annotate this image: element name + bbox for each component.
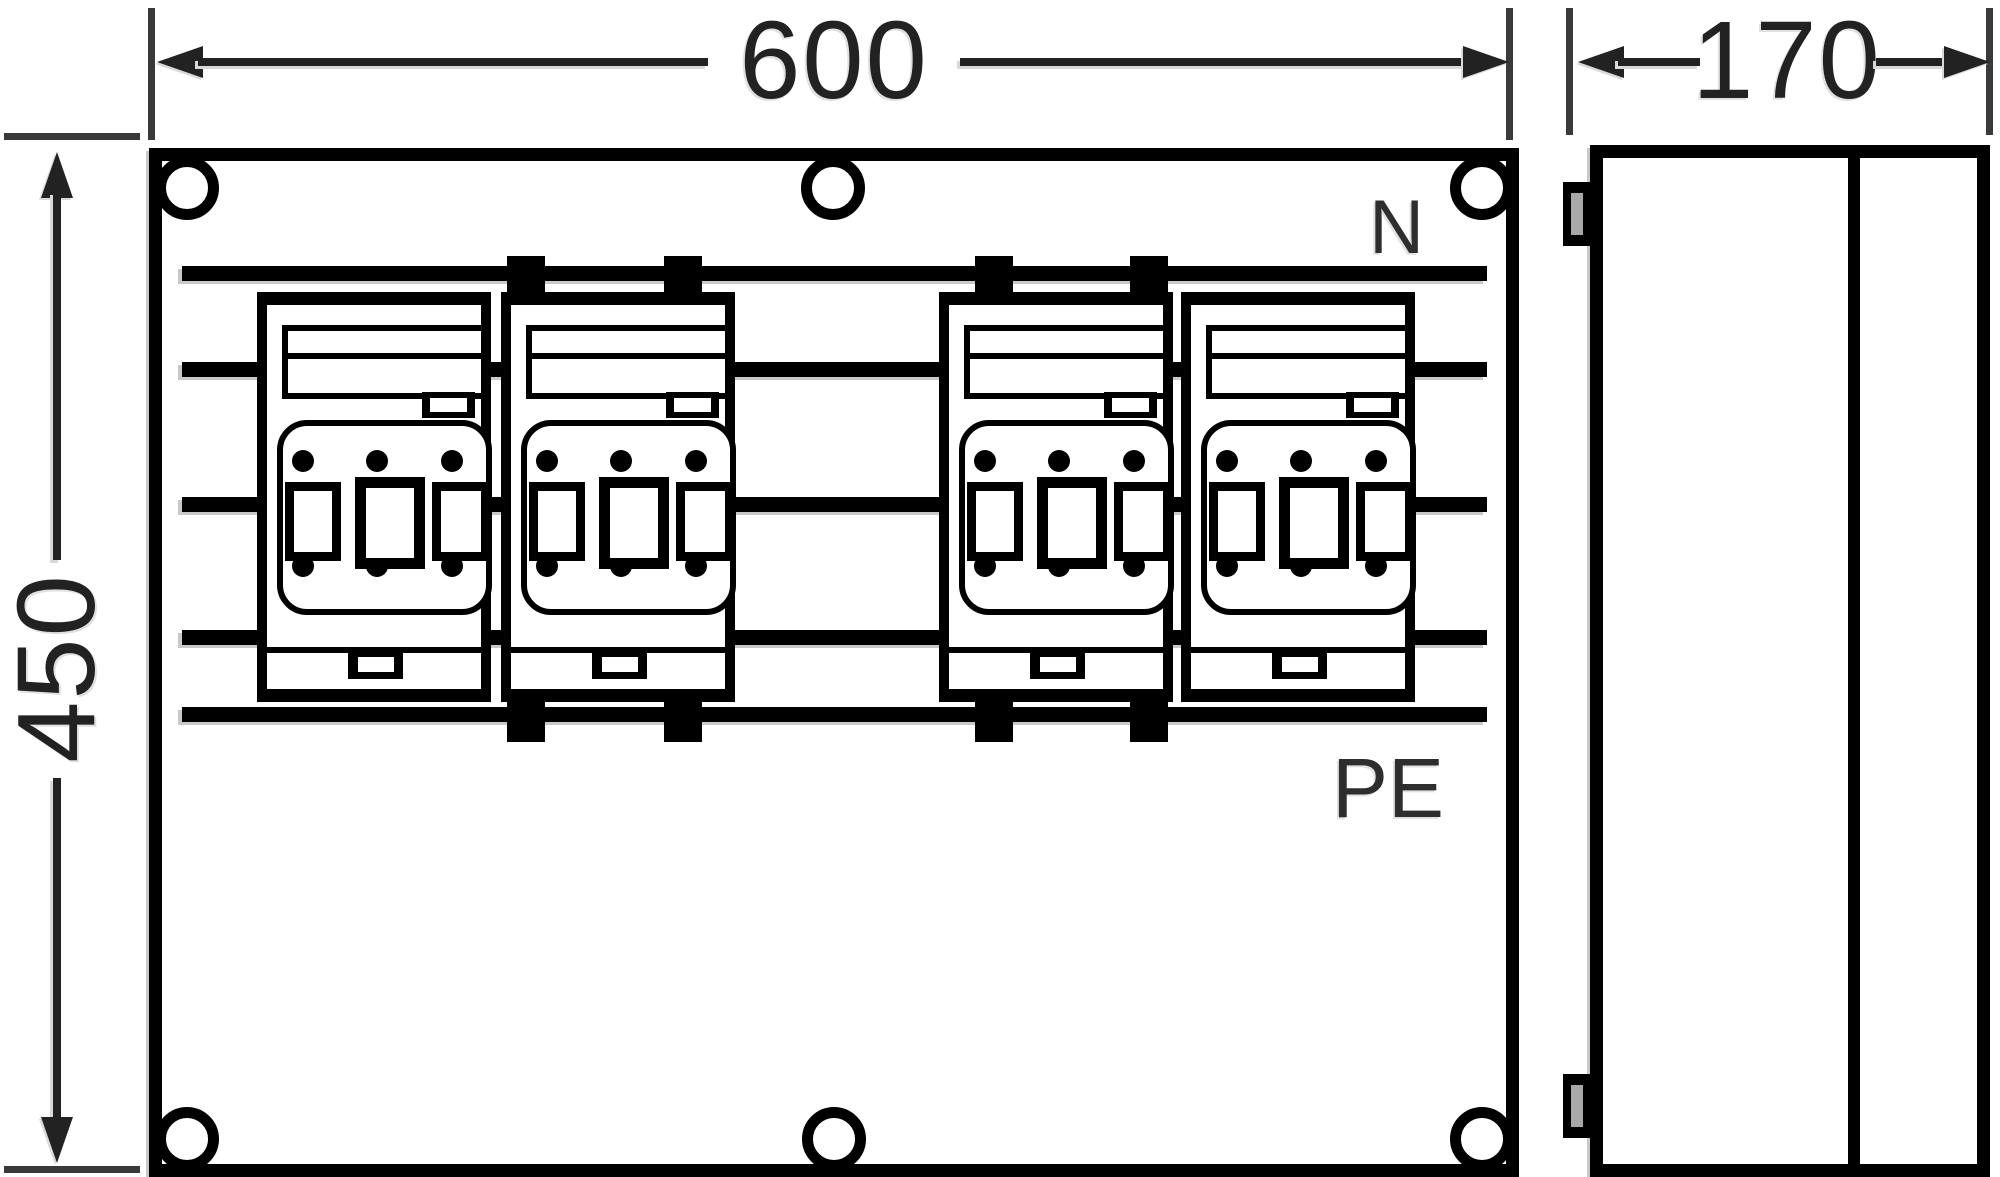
fuse-switch-unit-3	[939, 292, 1173, 702]
rail-clip-slot	[358, 657, 394, 672]
mounting-hole-bottom-center	[802, 1107, 866, 1171]
rail-clip-slot	[602, 657, 638, 672]
latch-window-slot	[1354, 398, 1391, 412]
screw-dot	[441, 450, 463, 472]
fuse-switch-unit-1	[257, 292, 491, 702]
depth-dimension-label: 170	[1692, 6, 1882, 116]
busbar-pe	[182, 707, 1487, 722]
unit-left-wall	[501, 292, 511, 702]
depth-dimension-line-right	[1876, 58, 1950, 66]
fuse-blade-window-right	[1114, 482, 1172, 561]
arrow-left-icon	[157, 46, 203, 78]
enclosure-dimension-drawing: 600 170 450 N PE	[0, 0, 2000, 1177]
fuse-blade-window-middle	[1279, 477, 1349, 569]
mounting-hole-top-right	[1450, 156, 1514, 220]
fuse-blade-window-middle	[599, 477, 669, 569]
unit-top-edge	[939, 292, 1173, 305]
wall-mount-clip-slot	[1571, 1085, 1583, 1127]
height-dimension-line-bottom	[53, 778, 61, 1120]
neutral-busbar-label: N	[1340, 190, 1424, 256]
unit-latch-window	[1346, 392, 1399, 418]
depth-dimension-line-left	[1618, 58, 1700, 66]
label-block-divider	[970, 353, 1163, 359]
busbar-clamp-tab	[664, 256, 702, 293]
busbar-clamp-tab	[975, 701, 1013, 742]
busbar-clamp-tab	[1130, 701, 1168, 742]
unit-top-edge	[1181, 292, 1415, 305]
mounting-hole-bottom-left	[155, 1107, 219, 1171]
cover-joint-line	[1848, 158, 1860, 1170]
fuse-switch-unit-2	[501, 292, 735, 702]
width-dimension-line-right	[960, 58, 1465, 66]
busbar-neutral	[182, 266, 1487, 281]
busbar-clamp-tab	[507, 256, 545, 293]
fuse-blade-window-middle	[1037, 477, 1107, 569]
screw-dot	[1365, 450, 1387, 472]
fuse-blade-window-right	[432, 482, 490, 561]
screw-dot	[366, 450, 388, 472]
unit-latch-window	[1104, 392, 1157, 418]
screw-dot	[1290, 450, 1312, 472]
fuse-blade-window-right	[676, 482, 734, 561]
busbar-clamp-tab	[1130, 256, 1168, 293]
extension-line-width-left	[148, 8, 155, 140]
width-dimension-line-left	[198, 58, 708, 66]
screw-dot	[685, 450, 707, 472]
unit-latch-window	[422, 392, 475, 418]
busbar-clamp-tab	[664, 701, 702, 742]
rail-clip-slot	[1282, 657, 1318, 672]
busbar-clamp-tab	[507, 701, 545, 742]
fuse-switch-unit-4	[1181, 292, 1415, 702]
arrow-right-icon	[1463, 46, 1509, 78]
screw-dot	[536, 450, 558, 472]
screw-dot	[974, 450, 996, 472]
unit-label-block	[282, 325, 487, 399]
fuse-blade-window-left	[967, 482, 1023, 561]
rail-clip-slot	[1040, 657, 1076, 672]
screw-dot	[1048, 450, 1070, 472]
rail-clip-notch	[1030, 650, 1085, 679]
screw-dot	[1123, 450, 1145, 472]
label-block-divider	[1212, 353, 1405, 359]
pe-busbar-label: PE	[1318, 746, 1458, 818]
unit-left-wall	[257, 292, 267, 702]
wall-mount-clip-top	[1563, 182, 1591, 246]
arrow-down-icon	[41, 1117, 73, 1163]
unit-bottom-edge	[257, 689, 491, 702]
rail-clip-notch	[348, 650, 403, 679]
extension-line-height-top	[4, 133, 140, 140]
fuse-blade-window-left	[529, 482, 585, 561]
rail-clip-notch	[1272, 650, 1327, 679]
unit-top-edge	[257, 292, 491, 305]
height-dimension-line-top	[53, 192, 61, 560]
unit-bottom-edge	[1181, 689, 1415, 702]
mounting-hole-top-center	[801, 156, 865, 220]
extension-line-height-bottom	[4, 1166, 140, 1173]
unit-label-block	[1206, 325, 1411, 399]
fuse-blade-window-right	[1356, 482, 1414, 561]
fuse-blade-window-middle	[355, 477, 425, 569]
fuse-blade-window-left	[1209, 482, 1265, 561]
wall-mount-clip-bottom	[1563, 1074, 1591, 1138]
extension-line-depth-left	[1566, 8, 1573, 135]
unit-left-wall	[939, 292, 949, 702]
screw-dot	[1216, 450, 1238, 472]
unit-label-block	[964, 325, 1169, 399]
unit-latch-window	[666, 392, 719, 418]
screw-dot	[610, 450, 632, 472]
enclosure-side-view	[1590, 145, 1990, 1177]
arrow-right-icon	[1944, 46, 1990, 78]
label-block-divider	[288, 353, 481, 359]
latch-window-slot	[674, 398, 711, 412]
unit-label-block	[526, 325, 731, 399]
rail-clip-notch	[592, 650, 647, 679]
label-block-divider	[532, 353, 725, 359]
mounting-hole-top-left	[155, 156, 219, 220]
mounting-hole-bottom-right	[1450, 1107, 1514, 1171]
height-dimension-label: 450	[2, 573, 112, 763]
latch-window-slot	[430, 398, 467, 412]
unit-top-edge	[501, 292, 735, 305]
unit-left-wall	[1181, 292, 1191, 702]
fuse-blade-window-left	[285, 482, 341, 561]
wall-mount-clip-slot	[1571, 193, 1583, 235]
width-dimension-label: 600	[712, 6, 956, 116]
latch-window-slot	[1112, 398, 1149, 412]
busbar-clamp-tab	[975, 256, 1013, 293]
screw-dot	[292, 450, 314, 472]
